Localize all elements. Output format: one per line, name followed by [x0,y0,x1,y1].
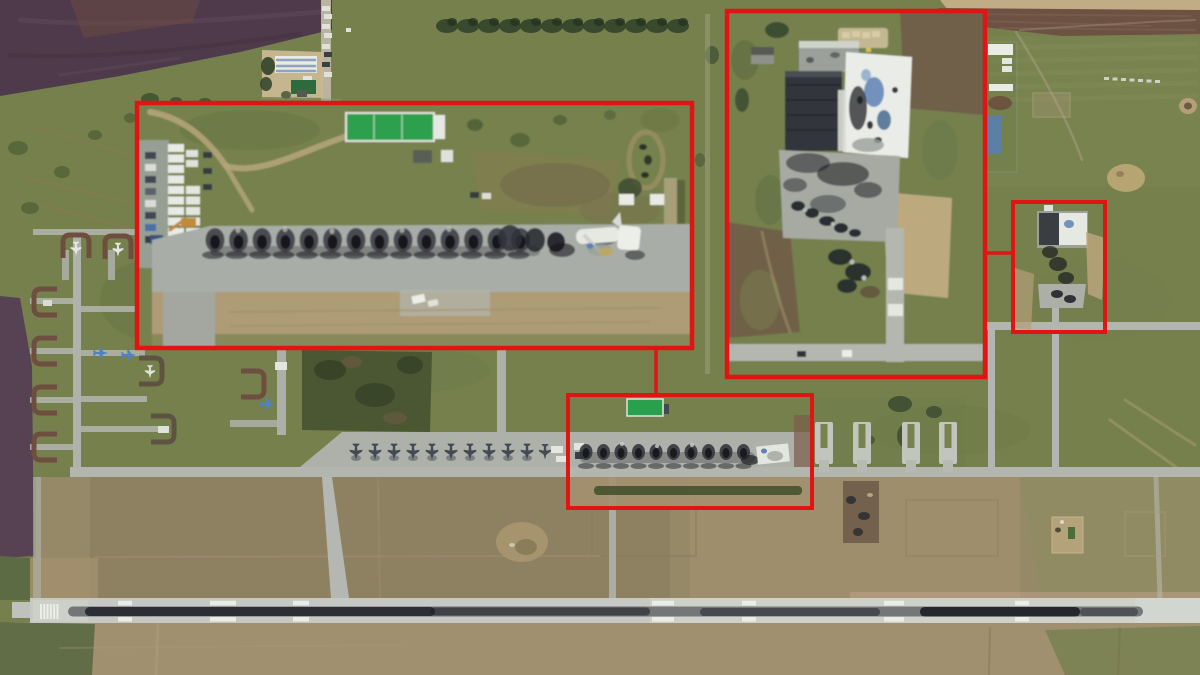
inset-building-content [830,52,840,58]
vehicle-row [1113,78,1118,81]
inset-building-content [867,121,873,129]
road-between-insets [705,14,710,374]
terrain-fields [383,412,407,424]
runway [1015,617,1029,622]
inset-flightline-content [484,251,506,259]
source-building-content [1086,232,1105,300]
flightline-aircraft [821,424,828,448]
source-flightline-content [705,448,712,458]
threshold-bars [57,604,59,619]
burned-hangar [785,71,842,151]
inset-flightline-content [482,193,491,199]
inset-building-content [727,11,985,377]
vehicle-row [1130,79,1135,82]
terrain-fields [531,18,541,26]
inset-building-content [842,350,852,357]
terrain-fields [489,18,499,26]
terrain-fields [594,18,604,26]
roads-taxiways [497,350,506,435]
trailer-column [168,186,184,194]
inset-building-content [852,31,860,37]
trailer-column [186,197,200,205]
inset-flightline-content [498,225,522,251]
source-flightline-content [653,448,660,458]
inset-flightline-content [367,251,389,259]
inset-flightline-content [398,235,408,249]
inset-flightline-content [145,188,156,195]
inset-building-content [866,48,871,52]
inset-flightline-content [234,235,244,249]
inset-building-content [842,32,850,38]
source-flightline-content [655,444,659,448]
terrain-fields [989,628,990,675]
inset-flightline-content [202,251,224,259]
inset-flightline-content [283,226,288,232]
facility-top [322,44,330,49]
right-side-features [1116,171,1124,177]
flightline-aircraft [908,424,915,448]
white-building [988,44,1013,55]
inset-building-content [862,276,867,281]
terrain-fields [88,130,102,140]
inset-building-content [831,222,835,226]
inset-building-content [785,71,842,77]
roads-taxiways [108,250,115,280]
inset-flightline-content [549,243,575,257]
inset-flightline-content [145,212,156,219]
inset-building-content [892,87,898,93]
inset-building-content [860,286,880,298]
right-side-features [1060,520,1064,524]
terrain-fields [509,543,515,547]
inset-building-content [765,22,789,38]
right-side-features [1068,527,1075,539]
trailer-column [168,144,184,152]
screenshot-stage [0,0,1200,675]
terrain-fields [1020,477,1200,600]
source-flightline-content [613,463,629,469]
terrain-fields [615,18,625,26]
inset-flightline-content [257,235,267,249]
runway [293,617,309,622]
inset-flightline-content [461,251,483,259]
inset-flightline-content [604,110,616,120]
flightline-aircraft [943,460,953,472]
inset-flightline-content [296,251,318,259]
inset-road [727,344,985,361]
inset-flightline-content [470,192,479,198]
facility-top [346,28,351,32]
trailer-column [186,207,200,215]
terrain-fields [926,406,942,418]
facility-top [261,57,275,75]
dispersal-revetments [43,300,52,306]
destroyed-building-white [1058,213,1087,245]
inset-flightline-content [186,160,198,167]
blue-roof-building [988,116,1002,154]
threshold-bars [43,604,45,619]
terrain-fields [850,592,1200,599]
right-side-features [1002,66,1012,72]
inset-flightline-content [320,251,342,259]
green-roof-warehouse [346,113,434,141]
inset-flightline-content [650,194,665,205]
source-building-content [1064,220,1074,228]
inset-flightline-content [445,235,455,249]
destroyed-building-burned [1039,213,1059,245]
inset-flightline-content [273,251,295,259]
inset-building-content [852,138,884,152]
facility-top [297,90,307,97]
inset-flightline-content [400,227,405,233]
right-side-features [988,96,1012,110]
roads-taxiways [30,298,76,304]
inset-flightline-content [422,235,432,249]
inset-building-content [861,69,871,81]
facility-top [322,62,330,67]
runway [884,601,904,606]
terrain-fields [510,18,520,26]
runway [118,617,132,622]
threshold-bars [47,604,49,619]
inset-building-content [888,278,903,290]
inset-flightline-content [639,144,647,150]
roads-taxiways [33,477,41,602]
inset-flightline-content [281,235,291,249]
inset-flightline-content [587,243,594,249]
trailer-column [168,197,184,205]
trailer-column [168,176,184,184]
runway [742,617,756,622]
source-flightline-content [718,463,734,469]
inset-building-content [735,88,749,112]
inset-flightline-content [249,251,271,259]
inset-flightline-content [413,150,432,163]
inset-flightline-content [180,110,320,150]
inset-flightline-content [640,108,680,132]
roads-taxiways [30,444,76,450]
inset-flightline-content [434,115,445,139]
field-below-runway [0,622,1200,675]
flightline-aircraft [556,456,566,462]
vehicle-row [1121,78,1126,81]
dirt-patch [1107,164,1145,192]
inset-flightline-content [145,200,156,207]
inset-flightline-content [203,184,212,190]
right-side-features [1033,93,1070,117]
inset-building-content [817,162,869,186]
runway [1135,598,1200,623]
inset-flightline-content [203,152,212,158]
threshold-bars [40,604,42,619]
inset-flightline-content [328,235,338,249]
terrain-fields [342,356,362,368]
inset-flightline-content [553,115,567,125]
roads-taxiways [30,348,76,354]
dispersal-revetments [275,362,287,370]
source-building-content [1064,295,1076,303]
roads-taxiways [230,420,280,427]
inset-building-content [838,90,846,151]
terrain-fields [695,153,705,167]
inset-building-content [783,178,807,192]
inset-building-content [751,47,774,55]
inset-building-content [845,263,871,281]
inset-flightline-content [304,235,314,249]
inset-flightline-content [414,251,436,259]
source-flightline-content [596,463,612,469]
inset-building-content [791,201,805,211]
right-side-features [867,493,873,497]
trailer-column [168,207,184,215]
source-flightline-content [666,463,682,469]
source-building-content [1058,272,1074,284]
source-flightline-content [794,415,812,467]
facility-top [324,33,332,38]
inset-flightline-content [508,251,530,259]
source-flightline-content [600,448,607,458]
inset-building-content [797,351,806,357]
source-flightline-content [670,448,677,458]
right-side-features [1002,58,1012,64]
facility-top [324,52,332,57]
inset-flightline-content [390,251,412,259]
inset-building-content [877,110,891,130]
source-flightline-content [578,463,594,469]
inset-building-content [854,182,882,198]
runway [85,607,435,616]
dispersal-taxiway [73,235,81,475]
inset-flightline-content [619,194,634,205]
source-building-content [1051,290,1063,298]
inset-flightline-content [203,168,212,174]
inset-flightline-content [137,103,692,348]
trailer-column [168,165,184,173]
right-side-features [846,496,856,504]
runway [293,601,309,606]
terrain-fields [397,356,423,374]
inset-flightline-content [641,172,649,178]
source-building-content [1015,268,1034,330]
runway [884,617,904,622]
flightline-aircraft [819,460,829,472]
inset-flightline-content [163,292,215,348]
inset-building-content [864,77,884,107]
runway [1015,601,1029,606]
right-side-features [858,512,870,520]
terrain-fields [355,383,395,407]
terrain-fields [314,360,346,380]
vehicle-row [1138,79,1143,82]
right-side-features [853,528,863,536]
green-roof-building [627,399,663,416]
satellite-image [0,0,1200,675]
source-flightline-content [664,404,669,414]
terrain-fields [95,556,600,557]
threshold-bars [53,604,55,619]
inset-flightline-content [467,119,483,131]
inset-flightline-content [617,225,641,251]
runway [430,608,650,616]
wrecked-transport-inset [576,226,621,244]
source-flightline-content [723,448,730,458]
source-flightline-content [761,449,767,454]
inset-flightline-content [437,251,459,259]
inset-flightline-content [375,235,385,249]
inset-building-content [799,41,859,48]
inset-flightline-content [145,164,156,171]
trailer-column [186,186,200,194]
facility-top [322,24,330,29]
roads-taxiways [12,602,32,618]
roads-taxiways [81,426,161,432]
inset-building-content [900,11,985,115]
inset-flightline-content [447,226,452,232]
inset-flightline-content [210,235,220,249]
facility-top [324,72,332,77]
terrain-fields [54,166,70,178]
source-building-content [1042,246,1058,258]
dispersal-revetments [158,426,169,433]
inset-flightline-content [469,235,479,249]
source-flightline-content [631,463,647,469]
threshold-bars [50,604,52,619]
source-flightline-content [618,448,625,458]
service-road-horizontal [960,322,1200,330]
inset-flightline-content [186,150,198,157]
terrain-fields [8,141,28,155]
flightline-aircraft [551,446,563,453]
source-flightline-content [741,455,759,465]
inset-building-content [828,249,852,265]
facility-top [322,6,330,11]
roads-taxiways [30,397,76,403]
runway [742,601,756,606]
inset-flightline-content [343,251,365,259]
inset-building-content [834,223,848,233]
terrain-fields [0,556,30,600]
inset-flightline-content [625,250,645,260]
inset-flightline-content [330,228,335,234]
runway [210,617,236,622]
terrain-fields [678,18,688,26]
right-side-features [1055,528,1061,533]
inset-building-content [805,208,819,218]
inset-flightline-content [236,227,241,233]
roads-taxiways [81,396,147,402]
inset-building-content [862,32,870,38]
inset-flightline-content [644,155,652,165]
source-flightline-content [583,448,590,458]
roads-taxiways [988,328,995,474]
inset-building-content [803,208,807,212]
terrain-fields [156,622,158,675]
inset-building-content [888,304,903,316]
facility-top [324,14,332,19]
runway [1080,608,1138,616]
source-flightline-content [648,463,664,469]
terrain-fields [657,18,667,26]
inset-building-content [886,330,904,344]
runway [652,617,674,622]
inset-building-content [837,279,857,293]
dirt-compound [1052,517,1083,553]
flightline-aircraft [906,460,916,472]
terrain-fields [447,18,457,26]
source-flightline-content [690,443,694,447]
hedgerow [594,486,802,495]
vehicle-row [1104,77,1109,80]
terrain-fields [515,539,537,555]
terrain-fields [552,18,562,26]
right-side-features [989,84,1013,91]
source-flightline-content [688,448,695,458]
source-flightline-content [683,463,699,469]
inset-flightline-content [525,228,545,252]
inset-building-content [849,229,861,237]
flightline-aircraft [857,460,867,472]
trailer-column [168,155,184,163]
terrain-fields [636,18,646,26]
terrain-fields [573,18,583,26]
crane-vehicle [181,218,196,227]
inset-flightline-content [510,133,530,147]
facility-top [260,77,272,91]
inset-flightline-content [145,152,156,159]
flightline-aircraft [945,424,952,448]
source-flightline-content [767,451,783,461]
roads-taxiways [81,306,143,312]
runway [210,601,236,606]
terrain-fields [888,396,912,412]
vehicle-row [1155,80,1160,83]
inset-flightline-content [598,248,614,256]
inset-building-content [806,57,814,63]
inset-building-content [922,120,958,180]
right-side-features [1184,103,1192,110]
inset-flightline-content [441,150,453,162]
terrain-fields [1045,626,1200,675]
source-building-content [1044,205,1053,211]
inset-flightline-content [145,176,156,183]
source-flightline-content [701,463,717,469]
inset-flightline-content [226,251,248,259]
flightline-aircraft [859,424,866,448]
inset-flightline-content [351,235,361,249]
terrain-fields [124,113,136,123]
inset-building-content [872,31,880,37]
source-flightline-content [635,448,642,458]
inset-building-content [849,86,867,130]
runway [652,601,674,606]
terrain-fields [21,202,39,214]
inset-flightline-content [145,224,156,231]
terrain-fields [468,18,478,26]
runway [30,598,1200,623]
runway [700,608,880,616]
inset-building-content [850,260,855,265]
vehicle-row [1147,80,1152,83]
source-flightline-content [620,442,624,446]
runway [118,601,132,606]
source-building-content [1049,257,1067,271]
runway [920,607,1080,617]
